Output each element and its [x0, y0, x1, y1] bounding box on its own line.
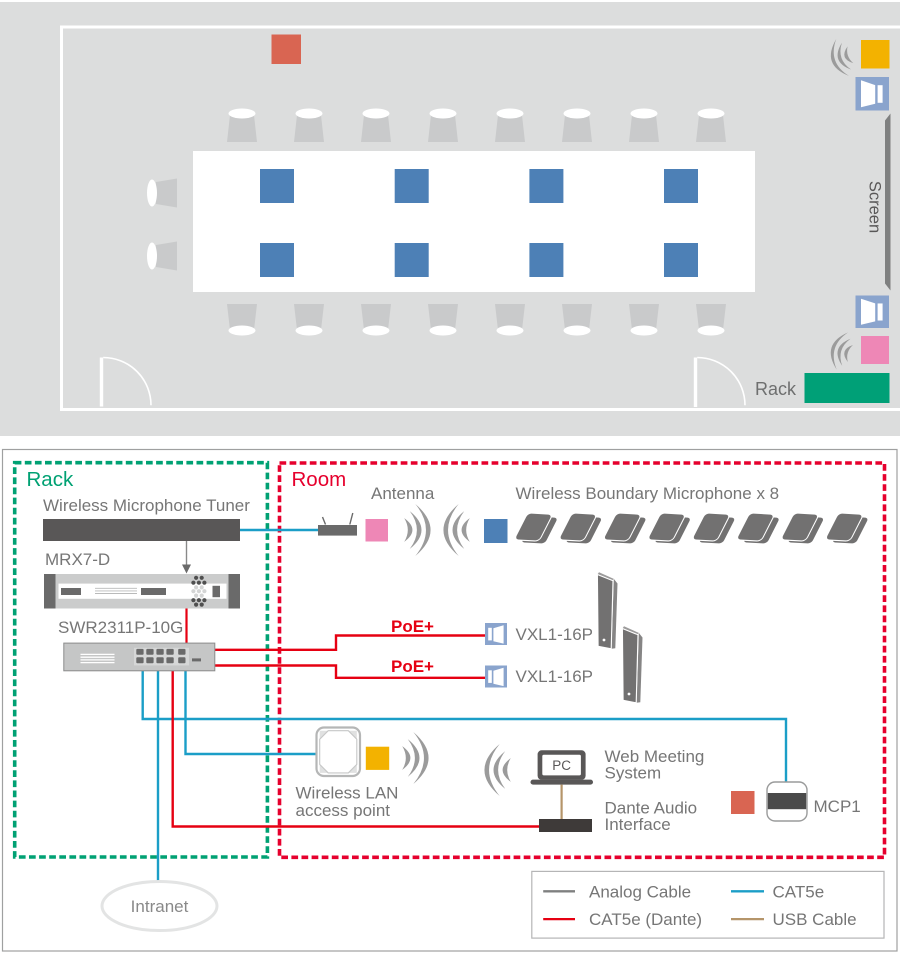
svg-text:CAT5e: CAT5e — [773, 882, 825, 901]
svg-text:VXL1-16P: VXL1-16P — [516, 667, 594, 686]
svg-text:Rack: Rack — [755, 379, 797, 399]
svg-text:USB Cable: USB Cable — [773, 910, 857, 929]
svg-text:Antenna: Antenna — [371, 484, 435, 503]
svg-text:VXL1-16P: VXL1-16P — [516, 625, 594, 644]
svg-text:Wireless Boundary Microphone x: Wireless Boundary Microphone x 8 — [516, 484, 780, 503]
svg-text:MRX7-D: MRX7-D — [45, 550, 110, 569]
svg-text:PC: PC — [552, 758, 571, 773]
svg-text:System: System — [605, 764, 662, 783]
svg-text:Interface: Interface — [605, 815, 671, 834]
svg-text:Screen: Screen — [866, 181, 884, 233]
svg-text:access point: access point — [296, 801, 391, 820]
svg-text:PoE+: PoE+ — [391, 657, 434, 676]
svg-text:CAT5e (Dante): CAT5e (Dante) — [589, 910, 702, 929]
svg-text:Intranet: Intranet — [131, 897, 189, 916]
svg-text:PoE+: PoE+ — [391, 617, 434, 636]
svg-text:Wireless Microphone Tuner: Wireless Microphone Tuner — [43, 496, 250, 515]
svg-text:Room: Room — [292, 468, 347, 491]
svg-text:Analog Cable: Analog Cable — [589, 882, 691, 901]
svg-text:MCP1: MCP1 — [814, 797, 861, 816]
svg-text:Wireless LAN: Wireless LAN — [296, 784, 399, 803]
svg-text:SWR2311P-10G: SWR2311P-10G — [58, 618, 183, 637]
svg-text:Rack: Rack — [27, 468, 74, 491]
